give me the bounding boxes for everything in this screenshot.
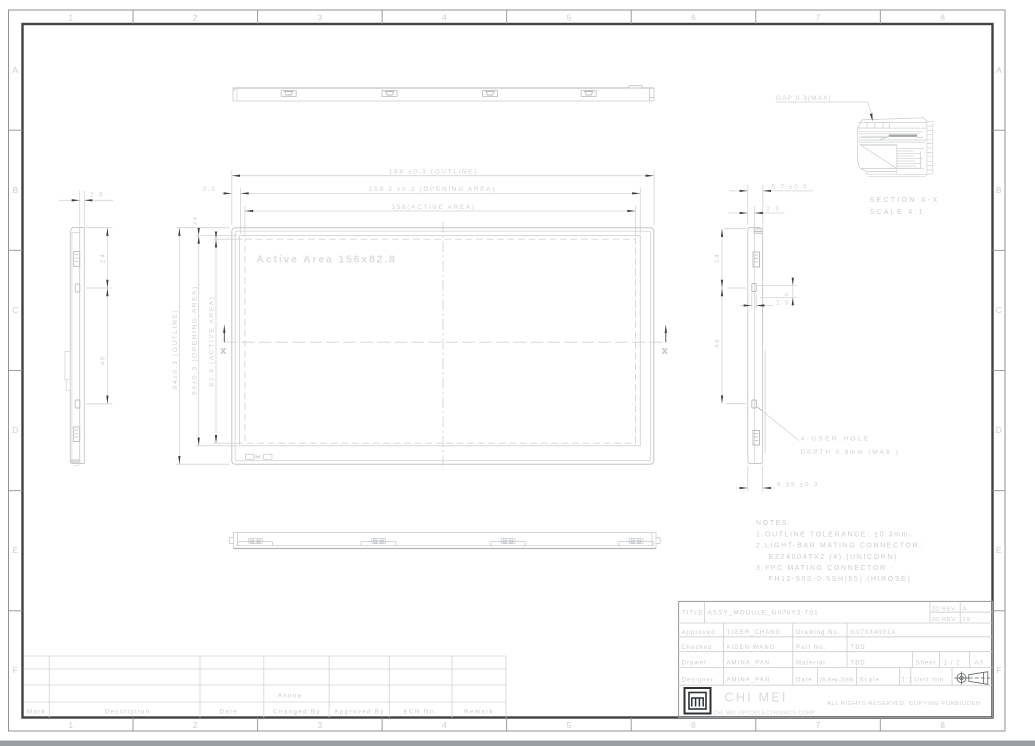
svg-text:CHI MEI OPTOELECTRONICS CORP.: CHI MEI OPTOELECTRONICS CORP. xyxy=(714,711,817,717)
svg-text:D: D xyxy=(996,425,1002,435)
svg-text:Approved By: Approved By xyxy=(334,708,384,715)
svg-text:Remark: Remark xyxy=(464,708,494,715)
svg-text:Sheet: Sheet xyxy=(916,660,937,666)
svg-text:EZ24004TX2 (4) (UNICORN): EZ24004TX2 (4) (UNICORN) xyxy=(769,554,898,561)
svg-text:DEPTH 0.9mm (MAX.): DEPTH 0.9mm (MAX.) xyxy=(801,449,900,456)
svg-text:1.OUTLINE TOLERANCE: ±0.3mm.: 1.OUTLINE TOLERANCE: ±0.3mm. xyxy=(756,531,913,538)
svg-text:Material: Material xyxy=(796,660,826,666)
svg-text:2D REV.: 2D REV. xyxy=(932,606,958,612)
svg-text:46: 46 xyxy=(714,338,721,349)
svg-text:3.1: 3.1 xyxy=(203,186,217,193)
svg-text:2.4: 2.4 xyxy=(193,217,199,225)
svg-text:1:1: 1:1 xyxy=(902,678,914,684)
svg-text:F: F xyxy=(996,665,1001,675)
svg-text:Anona: Anona xyxy=(278,693,303,700)
svg-text:B: B xyxy=(996,185,1002,195)
svg-text:Unit:mm: Unit:mm xyxy=(915,678,945,684)
svg-text:SCALE 4:1: SCALE 4:1 xyxy=(870,209,925,216)
svg-text:E: E xyxy=(12,545,18,555)
svg-text:TBD: TBD xyxy=(851,645,866,651)
svg-text:Date: Date xyxy=(796,678,813,684)
svg-text:X: X xyxy=(221,347,226,356)
svg-text:Drawing No.: Drawing No. xyxy=(796,630,841,636)
svg-text:Mark: Mark xyxy=(27,708,46,715)
svg-text:TITLE: TITLE xyxy=(682,611,704,617)
svg-text:SECTION X-X: SECTION X-X xyxy=(870,197,940,204)
svg-text:FH12-50S-0.5SH(55) (HIROSE): FH12-50S-0.5SH(55) (HIROSE) xyxy=(769,576,912,583)
svg-text:26-Sep-2006: 26-Sep-2006 xyxy=(819,678,854,684)
svg-text:1: 1 xyxy=(68,720,73,730)
svg-text:46: 46 xyxy=(99,355,106,366)
svg-text:A: A xyxy=(996,65,1002,75)
svg-text:24: 24 xyxy=(714,253,721,264)
svg-text:G07034001A: G07034001A xyxy=(851,630,897,636)
svg-text:1: 1 xyxy=(68,13,73,23)
svg-text:Checked: Checked xyxy=(682,645,713,651)
svg-text:2: 2 xyxy=(193,13,198,23)
svg-text:TBD: TBD xyxy=(851,660,866,666)
svg-text:6: 6 xyxy=(785,293,791,296)
svg-text:6.35 ±0.3: 6.35 ±0.3 xyxy=(777,481,819,488)
svg-text:7: 7 xyxy=(816,13,821,23)
svg-text:1 / 2: 1 / 2 xyxy=(944,660,961,666)
svg-text:C: C xyxy=(12,305,18,315)
svg-text:Approved: Approved xyxy=(682,630,716,636)
svg-text:D: D xyxy=(12,425,18,435)
svg-text:ASSY_MODULE_G070Y3-T01: ASSY_MODULE_G070Y3-T01 xyxy=(708,610,819,617)
svg-text:ECN No.: ECN No. xyxy=(404,708,438,715)
svg-text:2.3: 2.3 xyxy=(767,205,781,212)
svg-text:Changed By: Changed By xyxy=(273,708,321,715)
svg-text:4-USER HOLE: 4-USER HOLE xyxy=(801,436,871,443)
svg-text:Date: Date xyxy=(219,708,238,715)
svg-text:2: 2 xyxy=(193,720,198,730)
svg-text:GAP:0.3(MAX): GAP:0.3(MAX) xyxy=(776,95,832,102)
svg-text:NOTES:: NOTES: xyxy=(756,520,792,527)
svg-text:A: A xyxy=(963,606,968,612)
svg-text:5: 5 xyxy=(567,720,572,730)
svg-text:159.3 ±0.3 (OPENING AREA): 159.3 ±0.3 (OPENING AREA) xyxy=(369,186,496,193)
svg-text:Designer: Designer xyxy=(682,678,714,684)
svg-text:B: B xyxy=(12,185,18,195)
svg-text:Drawer: Drawer xyxy=(682,660,708,666)
svg-text:3: 3 xyxy=(318,720,323,730)
svg-text:Description: Description xyxy=(105,708,151,715)
svg-text:X: X xyxy=(662,347,667,356)
svg-text:CHI MEI: CHI MEI xyxy=(725,690,788,705)
svg-text:6: 6 xyxy=(691,720,696,730)
svg-text:86±0.3 (OPENING AREA): 86±0.3 (OPENING AREA) xyxy=(191,285,198,395)
svg-text:3: 3 xyxy=(318,13,323,23)
svg-text:AMINA_PAN: AMINA_PAN xyxy=(727,678,771,684)
svg-text:5: 5 xyxy=(567,13,572,23)
svg-text:3.FPC MATING CONNECTOR :: 3.FPC MATING CONNECTOR : xyxy=(756,565,894,572)
svg-text:TIGER_CHANG: TIGER_CHANG xyxy=(727,630,782,636)
svg-text:AIDEN WANG: AIDEN WANG xyxy=(727,645,776,651)
svg-text:Active Area 156x82.8: Active Area 156x82.8 xyxy=(257,254,397,266)
svg-text:1.5: 1.5 xyxy=(776,300,790,307)
svg-text:6: 6 xyxy=(691,13,696,23)
svg-text:5.7 ±0.3: 5.7 ±0.3 xyxy=(772,184,809,191)
svg-text:Scale: Scale xyxy=(860,678,880,684)
svg-text:8: 8 xyxy=(940,13,945,23)
svg-text:2.3: 2.3 xyxy=(90,191,104,198)
svg-text:F: F xyxy=(13,665,18,675)
svg-text:E: E xyxy=(996,545,1002,555)
svg-text:24: 24 xyxy=(99,253,106,264)
svg-text:C: C xyxy=(996,305,1002,315)
svg-text:2.LIGHT-BAR MATING CONNECTOR:: 2.LIGHT-BAR MATING CONNECTOR: xyxy=(756,543,923,550)
svg-text:82.8 (ACTIVE AREA): 82.8 (ACTIVE AREA) xyxy=(209,295,216,386)
svg-text:156(ACTIVE AREA): 156(ACTIVE AREA) xyxy=(391,204,475,211)
svg-text:94±0.3 (OUTLINE): 94±0.3 (OUTLINE) xyxy=(172,309,179,390)
svg-text:7: 7 xyxy=(816,720,821,730)
svg-text:ALL RIGHTS RESERVED, COPYING F: ALL RIGHTS RESERVED, COPYING FORBIDDEN xyxy=(827,701,981,707)
svg-text:A: A xyxy=(12,65,18,75)
svg-text:Part No.: Part No. xyxy=(796,645,826,651)
svg-text:4: 4 xyxy=(442,13,447,23)
svg-text:19: 19 xyxy=(963,617,972,623)
svg-text:4: 4 xyxy=(442,720,447,730)
svg-text:3D REV.: 3D REV. xyxy=(932,617,958,623)
svg-text:168 ±0.3 (OUTLINE): 168 ±0.3 (OUTLINE) xyxy=(389,168,478,175)
svg-text:8: 8 xyxy=(940,720,945,730)
svg-text:AMINA_PAN: AMINA_PAN xyxy=(727,660,771,666)
svg-text:A3: A3 xyxy=(975,660,984,666)
